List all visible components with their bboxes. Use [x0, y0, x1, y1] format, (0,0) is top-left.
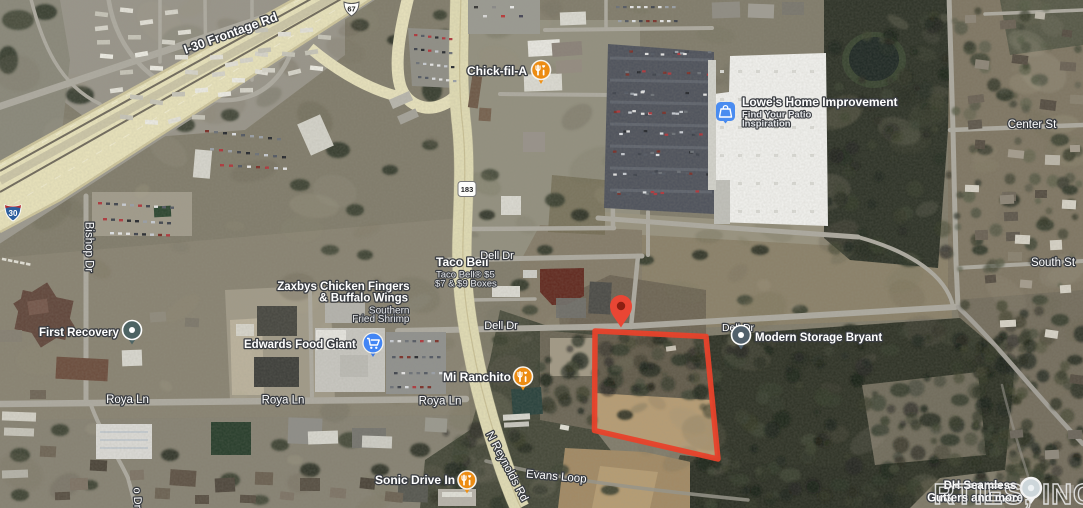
svg-text:o Dr: o Dr — [131, 487, 144, 508]
svg-text:& Buffalo Wings: & Buffalo Wings — [319, 293, 408, 305]
svg-text:Bishop Dr: Bishop Dr — [83, 222, 95, 273]
svg-text:Modern Storage Bryant: Modern Storage Bryant — [755, 332, 882, 344]
svg-text:183: 183 — [461, 185, 474, 194]
svg-text:30: 30 — [9, 209, 18, 218]
svg-text:Edwards Food Giant: Edwards Food Giant — [244, 339, 356, 351]
svg-text:Roya Ln: Roya Ln — [419, 396, 462, 408]
svg-text:$7 & $9 Boxes: $7 & $9 Boxes — [435, 279, 497, 290]
svg-text:Mi Ranchito: Mi Ranchito — [443, 370, 511, 384]
svg-text:Roya Ln: Roya Ln — [262, 395, 305, 407]
svg-text:Lowe's Home Improvement: Lowe's Home Improvement — [742, 95, 898, 109]
svg-text:Roya Ln: Roya Ln — [106, 394, 149, 406]
svg-text:Sonic Drive In: Sonic Drive In — [375, 473, 455, 487]
svg-text:RTIES, INC: RTIES, INC — [934, 479, 1083, 508]
svg-text:Dell Dr: Dell Dr — [480, 250, 514, 262]
svg-text:Zaxbys Chicken Fingers: Zaxbys Chicken Fingers — [277, 281, 409, 293]
svg-text:Chick-fil-A: Chick-fil-A — [467, 64, 527, 78]
svg-text:South St: South St — [1031, 257, 1076, 269]
svg-text:Center St: Center St — [1008, 119, 1057, 131]
svg-text:First Recovery: First Recovery — [39, 327, 120, 339]
svg-text:67: 67 — [347, 5, 355, 14]
svg-text:Dell Dr: Dell Dr — [484, 320, 518, 332]
svg-text:Fried Shrimp: Fried Shrimp — [352, 314, 410, 325]
svg-text:Inspiration: Inspiration — [742, 119, 791, 130]
